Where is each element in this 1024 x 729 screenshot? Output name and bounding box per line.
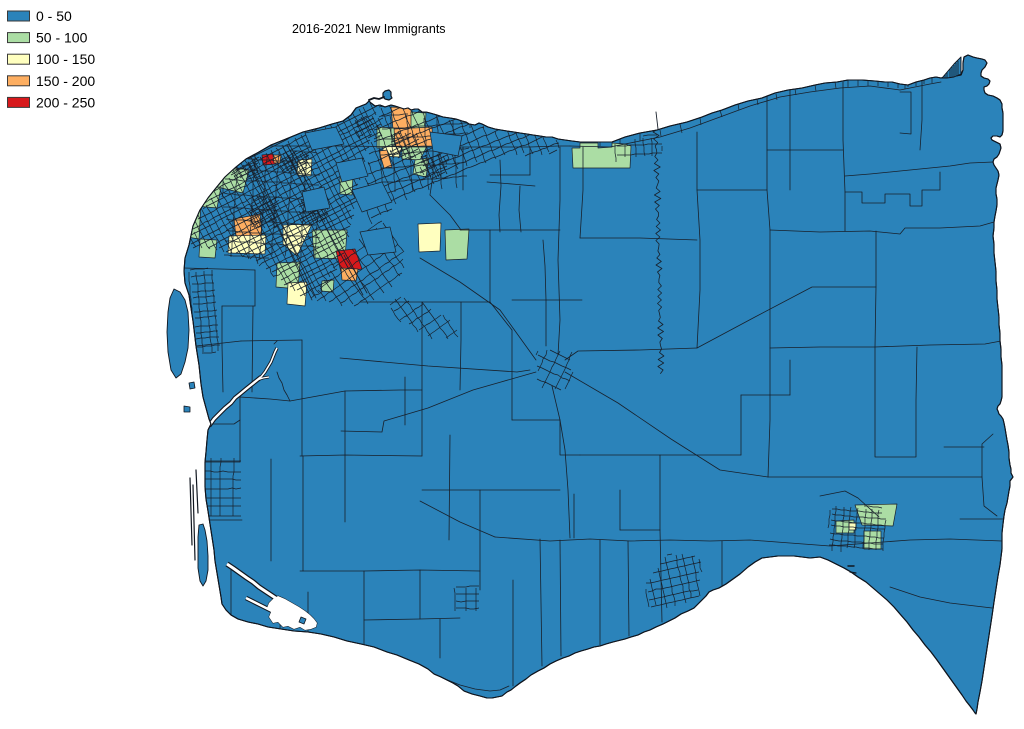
svg-text:200 - 250: 200 - 250: [36, 94, 95, 110]
svg-text:50 - 100: 50 - 100: [36, 30, 88, 46]
svg-text:0 - 50: 0 - 50: [36, 8, 72, 24]
svg-text:150 - 200: 150 - 200: [36, 73, 95, 89]
svg-text:2016-2021 New Immigrants: 2016-2021 New Immigrants: [292, 22, 446, 36]
svg-text:100 - 150: 100 - 150: [36, 51, 95, 67]
